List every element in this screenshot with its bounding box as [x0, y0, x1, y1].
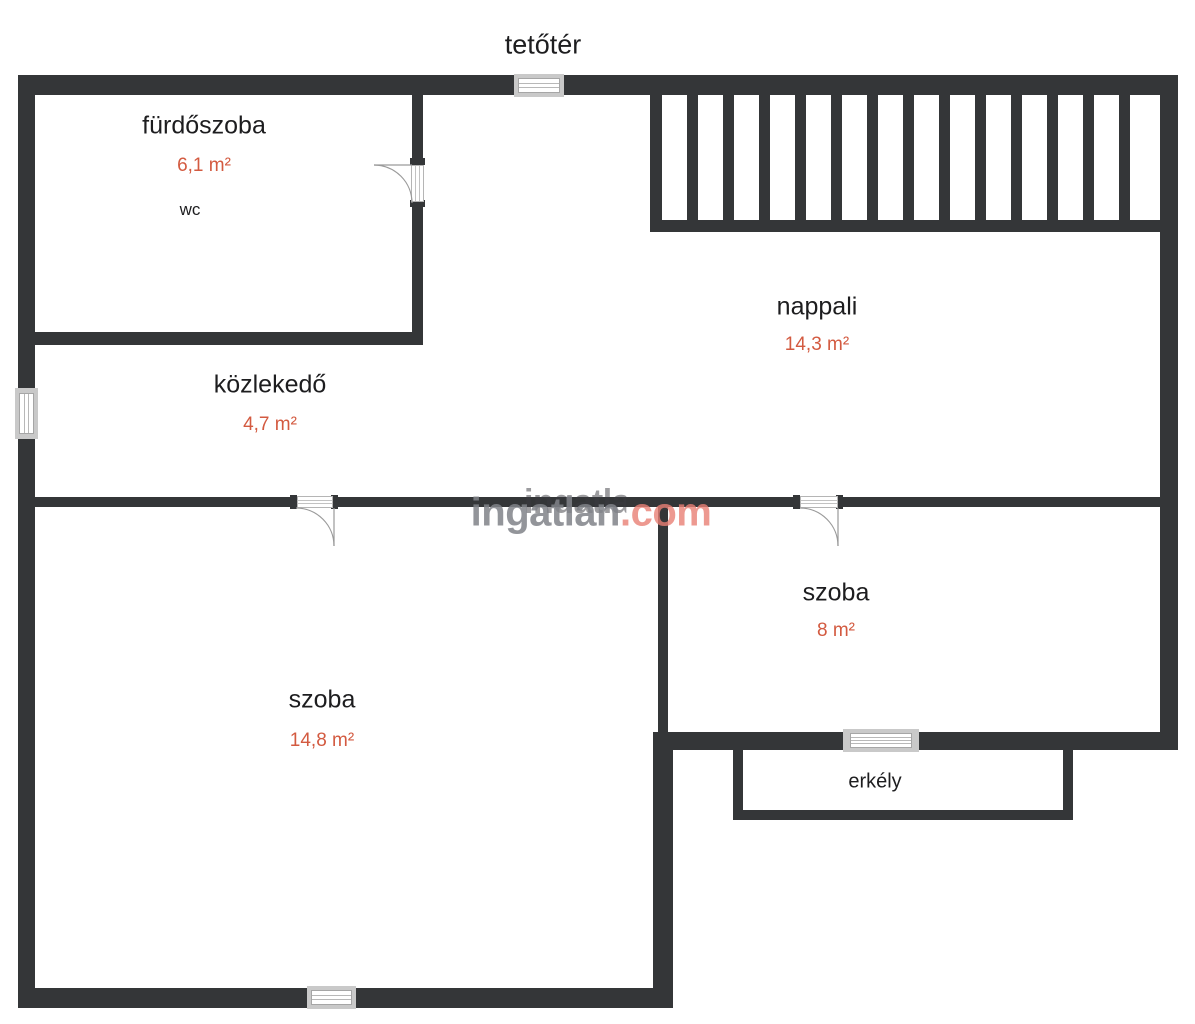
watermark: ingatlan.com	[471, 491, 712, 536]
door-jamb	[793, 495, 800, 509]
bathroom-door-opening	[410, 158, 425, 207]
watermark-tld: .com	[620, 491, 711, 535]
wall-left	[18, 75, 35, 1008]
szoba-door-arc	[296, 508, 334, 546]
room-area-szoba-nagy: 14,8 m²	[290, 730, 354, 752]
bathroom-door-leaf-band	[411, 165, 424, 202]
room-area-szoba-kis: 8 m²	[817, 620, 855, 642]
bathroom-door-arc	[374, 165, 412, 203]
room-area-kozlekedo: 4,7 m²	[243, 414, 297, 436]
window-left	[15, 388, 38, 439]
floor-plan: tetőtér	[0, 0, 1195, 1024]
room-label-erkely: erkély	[848, 771, 901, 794]
window-bottom	[307, 986, 356, 1009]
staircase-bottom-rail	[650, 220, 1160, 232]
staircase-side-wall	[650, 95, 662, 232]
window-szoba8	[843, 729, 919, 752]
room-label-szoba-kis: szoba	[803, 579, 870, 608]
room-label-furdoszoba: fürdőszoba	[142, 112, 266, 141]
window-left-glass	[19, 393, 34, 434]
room-label-nappali: nappali	[777, 293, 858, 322]
room-note-wc: wc	[180, 200, 201, 220]
nappali-door-leaf-band	[800, 496, 838, 508]
szoba-door-leaf-band	[297, 496, 333, 508]
window-bottom-glass	[311, 990, 352, 1005]
nappali-door-arc	[800, 508, 838, 546]
wall-right	[1160, 75, 1178, 750]
szoba-door-opening	[290, 495, 338, 509]
window-szoba8-glass	[850, 733, 912, 748]
room-area-nappali: 14,3 m²	[785, 334, 849, 356]
room-label-szoba-nagy: szoba	[289, 686, 356, 715]
wall-bathroom-right	[412, 95, 423, 345]
window-top	[514, 74, 564, 97]
balcony-bottom-wall	[733, 810, 1073, 820]
door-jamb	[290, 495, 297, 509]
wall-lower-divider	[653, 732, 673, 1008]
floor-title: tetőtér	[505, 30, 582, 61]
room-label-kozlekedo: közlekedő	[214, 371, 327, 400]
staircase-treads	[662, 95, 1155, 220]
wall-top	[18, 75, 1178, 95]
wall-rooms-divider	[658, 507, 668, 732]
door-jamb	[410, 158, 425, 165]
room-area-furdoszoba: 6,1 m²	[177, 155, 231, 177]
nappali-door-opening	[793, 495, 843, 509]
watermark-brand: ingatlan	[471, 491, 620, 535]
wall-bathroom-bottom	[35, 332, 423, 345]
window-top-glass	[518, 78, 560, 93]
